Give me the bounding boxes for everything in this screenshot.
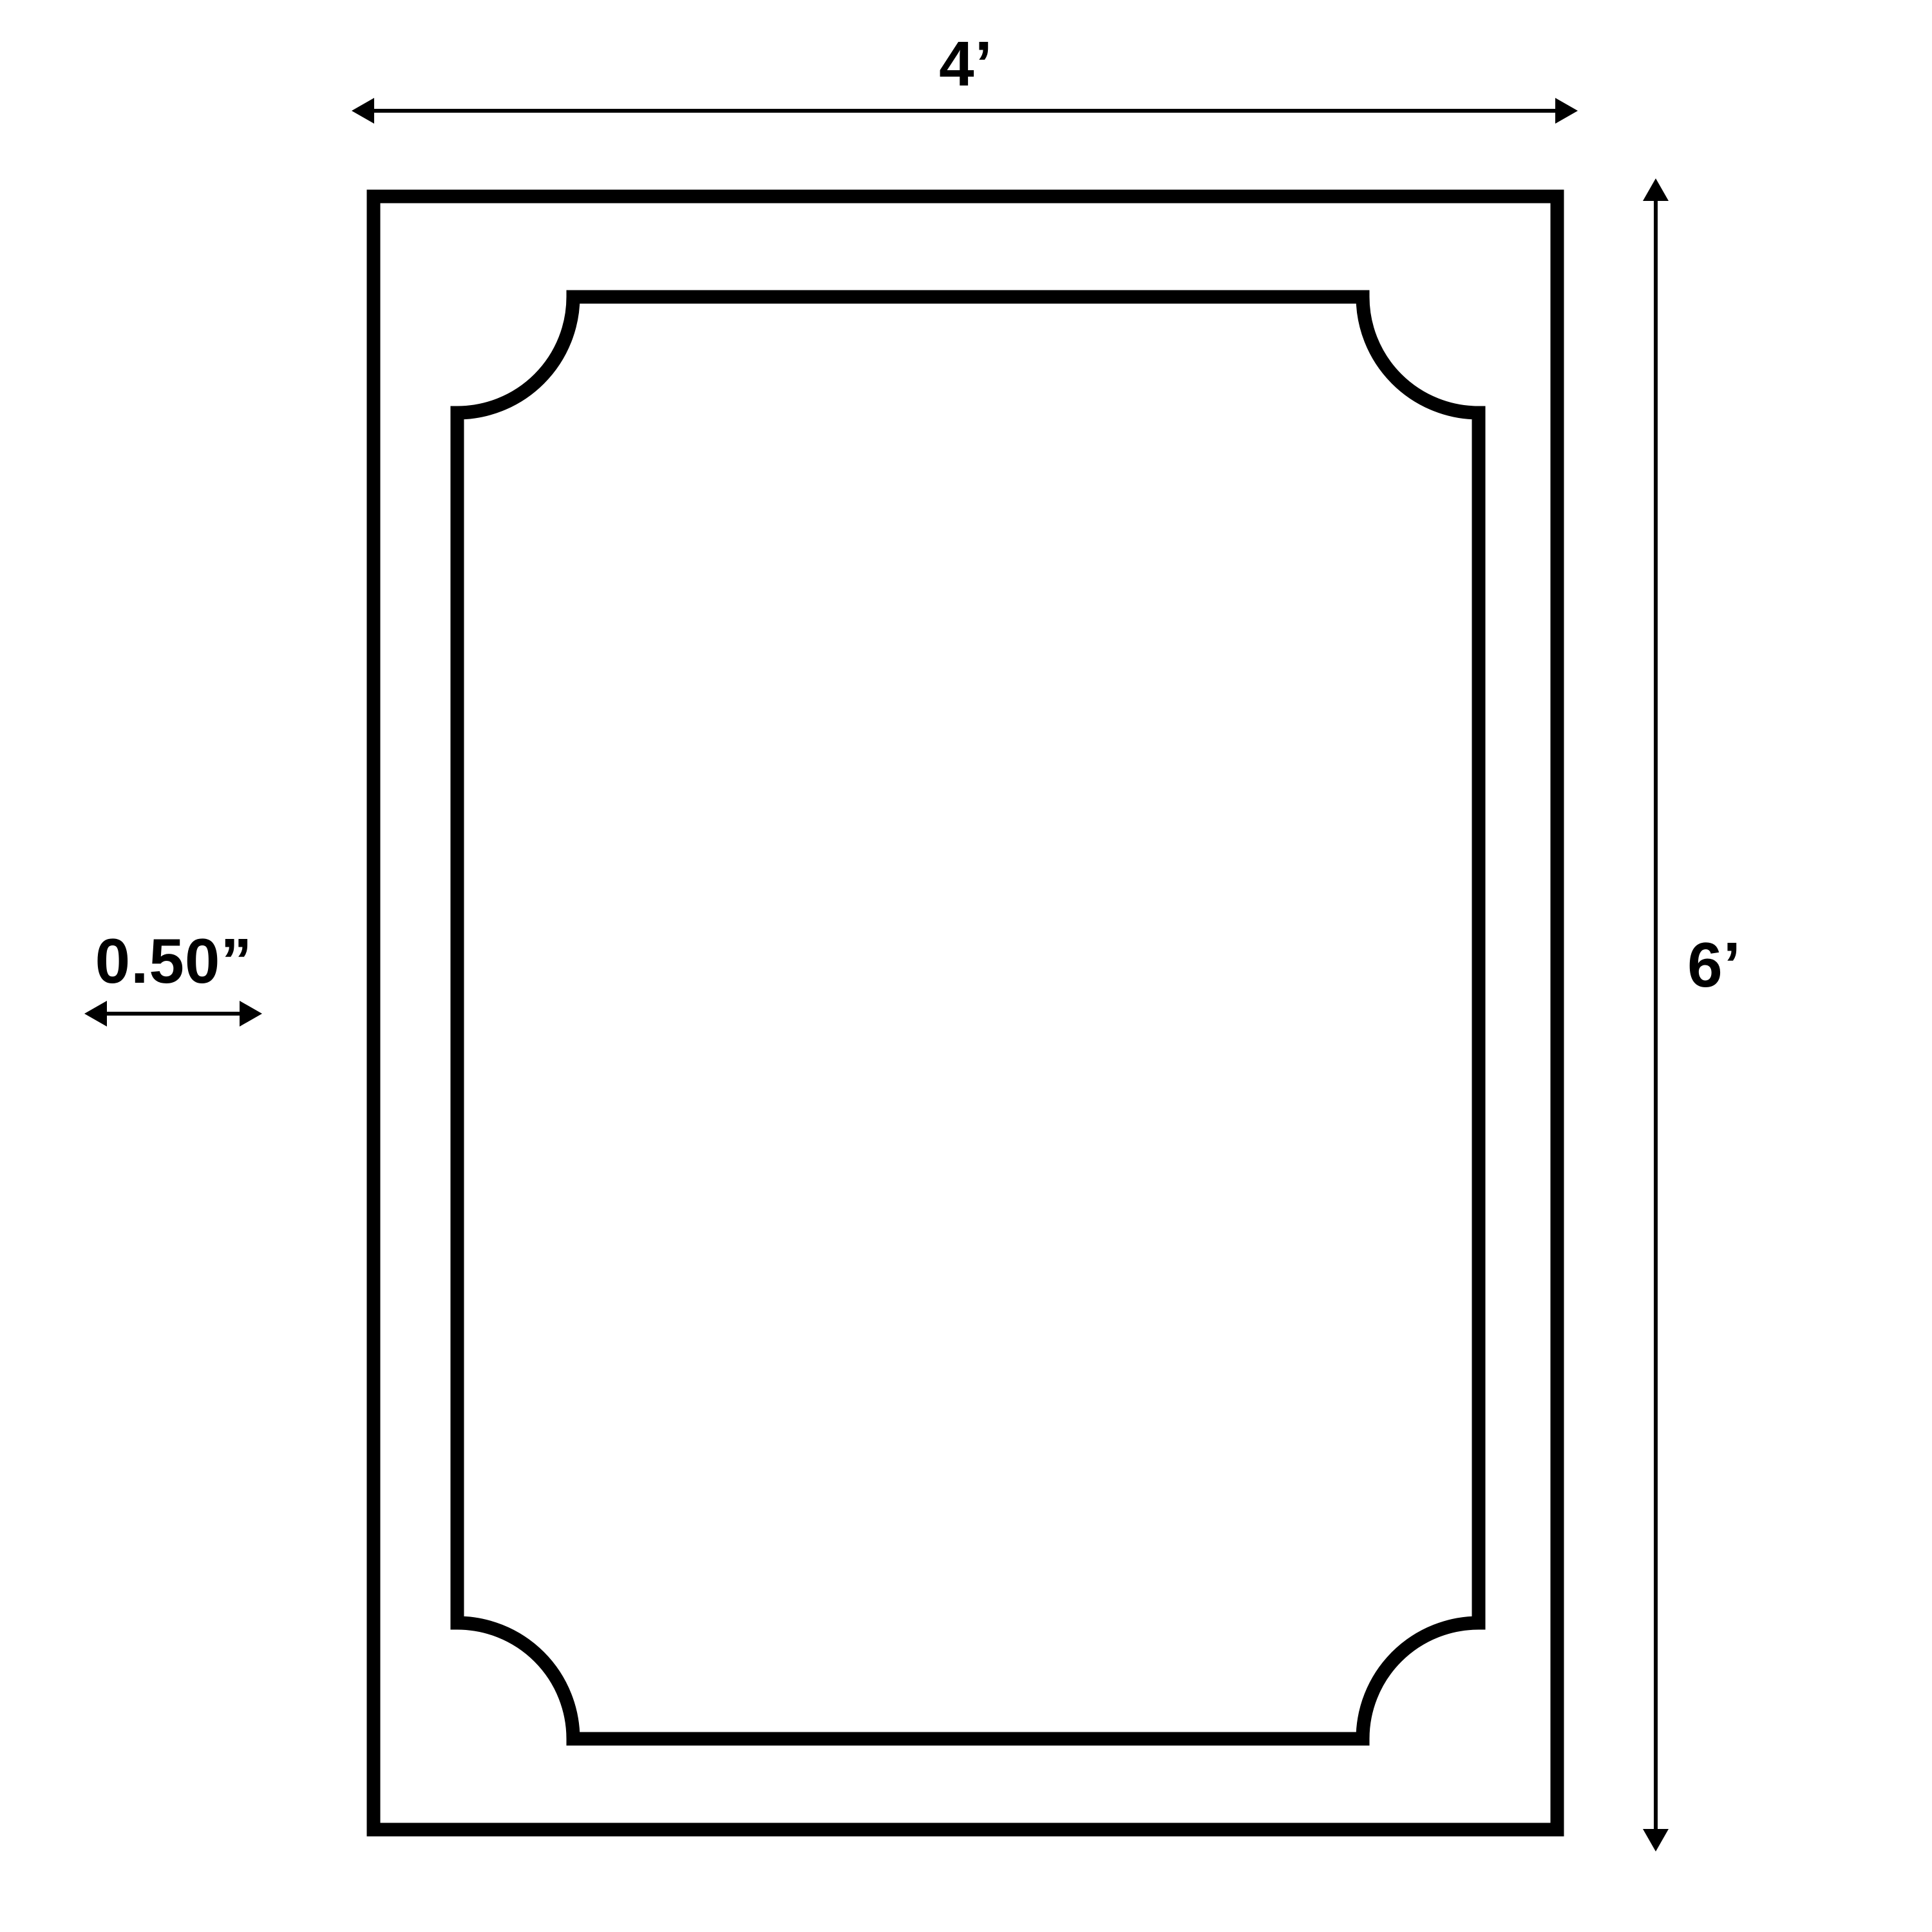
inner-frame-outline [457, 297, 1479, 1739]
height-dimension-label: 6’ [1687, 929, 1741, 1000]
width-arrowhead-right-icon [1555, 98, 1578, 124]
outer-frame-rectangle [374, 196, 1557, 1830]
height-dimension: 6’ [1643, 178, 1741, 1851]
width-dimension: 4’ [352, 28, 1578, 124]
width-arrowhead-left-icon [352, 98, 374, 124]
thickness-dimension: 0.50” [84, 925, 262, 1027]
thickness-arrowhead-right-icon [240, 1001, 262, 1027]
width-dimension-label: 4’ [939, 28, 993, 99]
thickness-arrowhead-left-icon [84, 1001, 107, 1027]
height-arrowhead-top-icon [1643, 178, 1669, 201]
height-arrowhead-bottom-icon [1643, 1829, 1669, 1851]
diagram-canvas: 4’ 6’ 0.50” [0, 0, 1932, 1932]
panel-dimension-diagram: 4’ 6’ 0.50” [0, 0, 1932, 1932]
thickness-dimension-label: 0.50” [95, 925, 253, 996]
